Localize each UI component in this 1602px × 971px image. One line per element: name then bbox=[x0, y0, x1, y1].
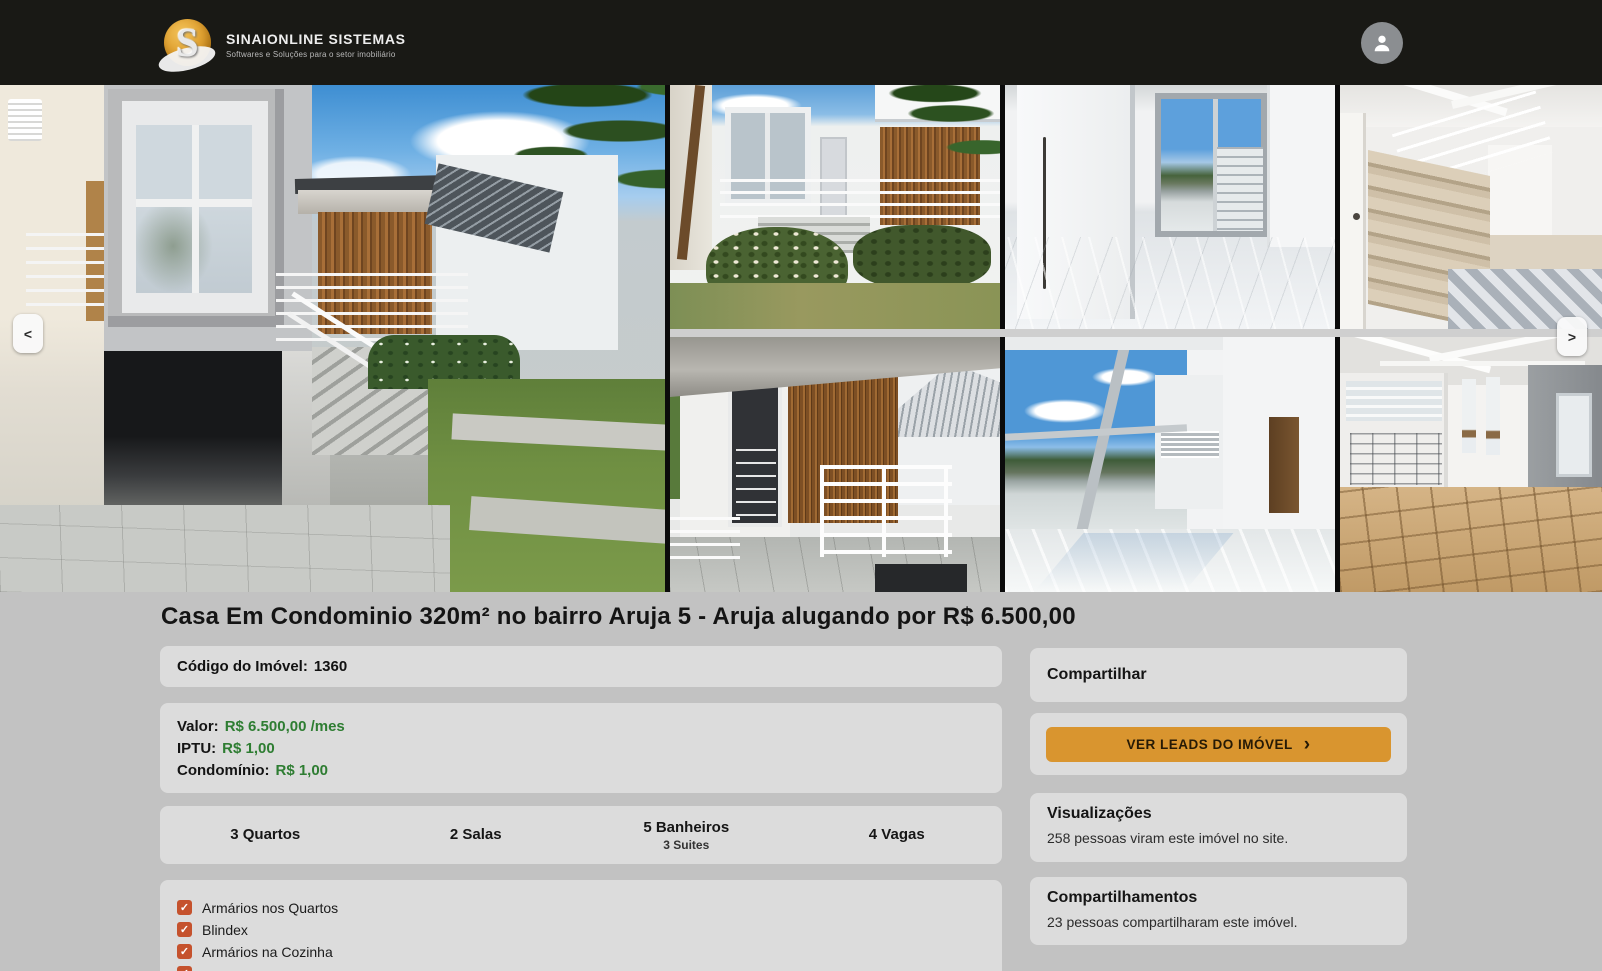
brand-tagline: Softwares e Soluções para o setor imobil… bbox=[226, 50, 406, 59]
checkbox-checked-icon[interactable]: ✓ bbox=[177, 944, 192, 959]
chevron-right-icon: > bbox=[1568, 329, 1576, 345]
amenity-row: ✓ Armários na Cozinha bbox=[177, 944, 985, 959]
gallery-photo-entrance[interactable] bbox=[670, 85, 1000, 329]
price-value: R$ 6.500,00 /mes bbox=[225, 718, 345, 735]
user-icon bbox=[1371, 32, 1393, 54]
doorway bbox=[1556, 393, 1592, 477]
white-railing bbox=[820, 465, 952, 557]
ver-leads-button[interactable]: VER LEADS DO IMÓVEL › bbox=[1046, 727, 1391, 762]
amenity-row: ✓ Armários nos Quartos bbox=[177, 900, 985, 915]
condominio-label: Condomínio: bbox=[177, 762, 269, 779]
logo-letter: S bbox=[176, 23, 198, 63]
mezzanine-railing bbox=[1350, 433, 1442, 485]
leads-card: VER LEADS DO IMÓVEL › bbox=[1030, 713, 1407, 775]
feature-salas: 2 Salas bbox=[371, 826, 582, 845]
ver-leads-label: VER LEADS DO IMÓVEL bbox=[1126, 737, 1292, 752]
gallery-photo-staircase[interactable] bbox=[1340, 85, 1602, 329]
lawn bbox=[428, 379, 665, 592]
amenity-row: ✓ Blindex bbox=[177, 922, 985, 937]
feature-label: 4 Vagas bbox=[869, 826, 925, 843]
window-glass bbox=[136, 125, 252, 293]
header-bar: S SINAIONLINE SISTEMAS Softwares e Soluç… bbox=[0, 0, 1602, 85]
amenities-card: ✓ Armários nos Quartos ✓ Blindex ✓ Armár… bbox=[160, 880, 1002, 971]
feature-vagas: 4 Vagas bbox=[792, 826, 1003, 845]
narrow-window bbox=[1486, 377, 1500, 455]
bush bbox=[853, 225, 991, 289]
gallery-row-divider bbox=[670, 329, 1602, 337]
amenity-label: Blindex bbox=[202, 922, 248, 938]
glossy-floor bbox=[1005, 237, 1335, 329]
white-railing bbox=[26, 233, 110, 317]
gallery-photo-living-room[interactable] bbox=[1340, 337, 1602, 592]
photo-gallery: < > bbox=[0, 85, 1602, 592]
price-row: Valor: R$ 6.500,00 /mes bbox=[177, 715, 985, 737]
white-railing bbox=[670, 517, 740, 569]
features-card: 3 Quartos 2 Salas 5 Banheiros 3 Suites 4… bbox=[160, 806, 1002, 864]
property-code-value: 1360 bbox=[314, 658, 347, 675]
iptu-value: R$ 1,00 bbox=[222, 740, 275, 757]
feature-sub: 3 Suites bbox=[663, 838, 709, 852]
ac-unit bbox=[8, 99, 42, 141]
shares-text: 23 pessoas compartilharam este imóvel. bbox=[1047, 914, 1390, 930]
garage-opening bbox=[104, 351, 282, 515]
driveway bbox=[0, 505, 450, 592]
lawn bbox=[670, 283, 1000, 329]
door-edge bbox=[1340, 113, 1366, 329]
stairwell-void bbox=[875, 564, 967, 592]
checkbox-checked-icon[interactable]: ✓ bbox=[177, 900, 192, 915]
wood-door bbox=[1269, 417, 1299, 513]
shares-title: Compartilhamentos bbox=[1047, 889, 1390, 907]
amenity-row: ✓ bbox=[177, 966, 985, 971]
property-code-label: Código do Imóvel: bbox=[177, 658, 308, 675]
interior-railing bbox=[736, 449, 776, 521]
checkbox-checked-icon[interactable]: ✓ bbox=[177, 966, 192, 971]
shares-card: Compartilhamentos 23 pessoas compartilha… bbox=[1030, 877, 1407, 945]
carousel-next-button[interactable]: > bbox=[1557, 317, 1587, 356]
door-knob bbox=[1353, 213, 1360, 220]
share-title: Compartilhar bbox=[1047, 666, 1147, 684]
feature-label: 5 Banheiros bbox=[643, 819, 729, 836]
iptu-row: IPTU: R$ 1,00 bbox=[177, 737, 985, 759]
gallery-photo-main-exterior[interactable] bbox=[0, 85, 665, 592]
neighbor-building bbox=[1217, 147, 1263, 231]
price-label: Valor: bbox=[177, 718, 219, 735]
clerestory-window bbox=[1346, 381, 1442, 421]
brand-name: SINAIONLINE SISTEMAS bbox=[226, 31, 406, 47]
gallery-photo-glass-hallway[interactable] bbox=[1005, 337, 1335, 592]
feature-quartos: 3 Quartos bbox=[160, 826, 371, 845]
white-railing bbox=[276, 273, 468, 341]
views-title: Visualizações bbox=[1047, 805, 1390, 823]
user-avatar[interactable] bbox=[1361, 22, 1403, 64]
feature-label: 3 Quartos bbox=[230, 826, 300, 843]
brand-logo-icon[interactable]: S bbox=[164, 19, 211, 66]
gallery-photo-interior-door[interactable] bbox=[1005, 85, 1335, 329]
carousel-prev-button[interactable]: < bbox=[13, 314, 43, 353]
balcony-railing bbox=[1161, 431, 1219, 458]
wall bbox=[1267, 85, 1335, 247]
chevron-right-icon: › bbox=[1304, 735, 1311, 754]
iptu-label: IPTU: bbox=[177, 740, 216, 757]
share-card: Compartilhar bbox=[1030, 648, 1407, 702]
price-card: Valor: R$ 6.500,00 /mes IPTU: R$ 1,00 Co… bbox=[160, 703, 1002, 793]
amenity-label: Armários nos Quartos bbox=[202, 900, 338, 916]
amenity-label: Armários na Cozinha bbox=[202, 944, 333, 960]
property-code-card: Código do Imóvel: 1360 bbox=[160, 646, 1002, 687]
condominio-value: R$ 1,00 bbox=[275, 762, 328, 779]
views-card: Visualizações 258 pessoas viram este imó… bbox=[1030, 793, 1407, 862]
tile-floor bbox=[1340, 487, 1602, 592]
brand-block: SINAIONLINE SISTEMAS Softwares e Soluçõe… bbox=[226, 31, 406, 59]
gallery-photo-terrace[interactable] bbox=[670, 337, 1000, 592]
listing-title: Casa Em Condominio 320m² no bairro Aruja… bbox=[161, 603, 1076, 631]
feature-label: 2 Salas bbox=[450, 826, 502, 843]
chevron-left-icon: < bbox=[24, 326, 32, 342]
condominio-row: Condomínio: R$ 1,00 bbox=[177, 759, 985, 781]
checkbox-checked-icon[interactable]: ✓ bbox=[177, 922, 192, 937]
narrow-window bbox=[1462, 379, 1476, 453]
concrete-beam bbox=[298, 190, 448, 214]
feature-banheiros: 5 Banheiros 3 Suites bbox=[581, 819, 792, 852]
views-text: 258 pessoas viram este imóvel no site. bbox=[1047, 830, 1390, 846]
